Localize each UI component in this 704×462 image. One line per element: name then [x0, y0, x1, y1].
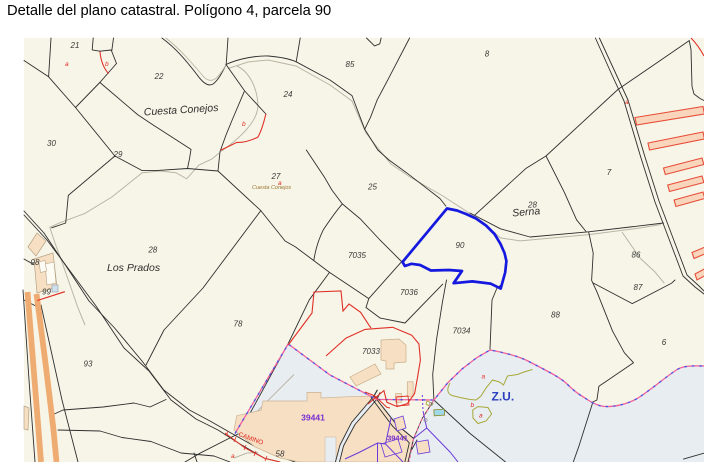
svg-text:88: 88: [551, 311, 560, 320]
svg-text:99: 99: [42, 288, 51, 297]
svg-text:7036: 7036: [400, 288, 418, 297]
svg-text:7035: 7035: [348, 251, 366, 260]
svg-text:93: 93: [84, 360, 93, 369]
svg-text:25: 25: [367, 183, 377, 192]
svg-text:Z.U.: Z.U.: [492, 390, 515, 404]
svg-text:28: 28: [147, 246, 157, 255]
svg-text:85: 85: [346, 60, 355, 69]
svg-text:Serna: Serna: [512, 205, 541, 219]
svg-text:a: a: [65, 61, 69, 68]
svg-text:b: b: [242, 121, 246, 128]
svg-text:90: 90: [456, 241, 465, 250]
svg-text:22: 22: [154, 72, 164, 81]
svg-text:Cuesta Conejos: Cuesta Conejos: [252, 185, 291, 191]
svg-text:30: 30: [47, 139, 56, 148]
svg-text:78: 78: [234, 320, 243, 329]
svg-text:87: 87: [634, 283, 643, 292]
svg-text:b: b: [105, 61, 109, 68]
svg-text:Los Prados: Los Prados: [107, 262, 161, 274]
svg-text:8: 8: [485, 50, 490, 59]
svg-text:6: 6: [662, 338, 667, 347]
svg-text:58: 58: [276, 450, 285, 459]
svg-text:39441: 39441: [301, 413, 325, 423]
svg-text:39441: 39441: [387, 434, 408, 443]
svg-text:86: 86: [632, 251, 641, 260]
svg-text:a: a: [231, 453, 235, 460]
svg-text:29: 29: [113, 150, 123, 159]
svg-text:b: b: [471, 402, 475, 409]
svg-text:7033: 7033: [362, 347, 380, 356]
svg-text:7034: 7034: [453, 327, 471, 336]
svg-text:a: a: [479, 413, 483, 420]
svg-text:24: 24: [283, 90, 293, 99]
svg-text:7: 7: [607, 168, 612, 177]
svg-text:a: a: [278, 180, 282, 187]
svg-text:a: a: [482, 374, 486, 381]
svg-text:21: 21: [70, 41, 80, 50]
svg-text:a: a: [625, 99, 629, 106]
svg-text:98: 98: [31, 258, 40, 267]
